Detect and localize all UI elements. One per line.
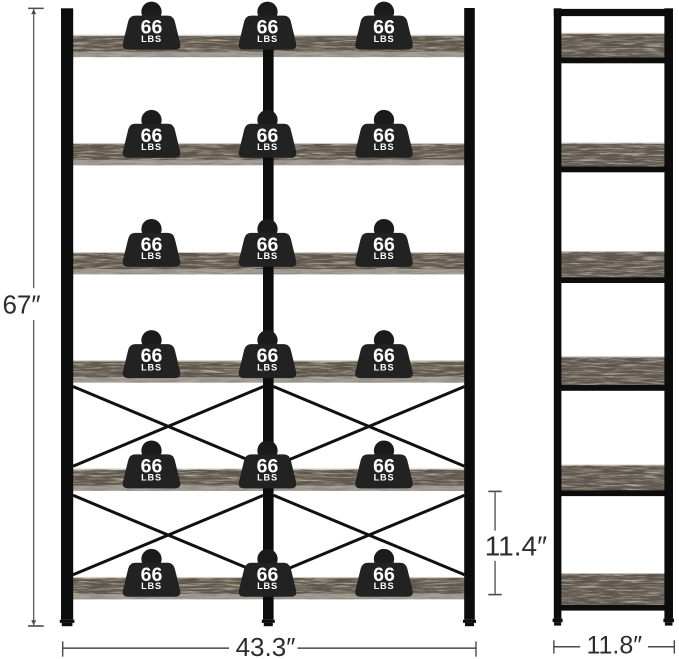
svg-text:LBS: LBS [257,581,278,591]
svg-text:67″: 67″ [2,289,40,319]
svg-text:LBS: LBS [141,581,162,591]
svg-text:LBS: LBS [141,473,162,483]
svg-text:LBS: LBS [141,142,162,152]
svg-text:LBS: LBS [257,362,278,372]
svg-text:LBS: LBS [257,142,278,152]
svg-text:43.3″: 43.3″ [236,632,296,659]
svg-text:LBS: LBS [374,473,395,483]
svg-text:LBS: LBS [257,34,278,44]
svg-text:LBS: LBS [374,581,395,591]
svg-text:11.8″: 11.8″ [586,631,642,659]
svg-text:LBS: LBS [141,34,162,44]
svg-text:LBS: LBS [141,251,162,261]
svg-text:LBS: LBS [141,362,162,372]
svg-text:LBS: LBS [257,473,278,483]
svg-text:LBS: LBS [374,362,395,372]
svg-text:LBS: LBS [374,251,395,261]
svg-text:LBS: LBS [374,142,395,152]
svg-text:LBS: LBS [257,251,278,261]
svg-text:LBS: LBS [374,34,395,44]
svg-text:11.4″: 11.4″ [485,530,547,561]
